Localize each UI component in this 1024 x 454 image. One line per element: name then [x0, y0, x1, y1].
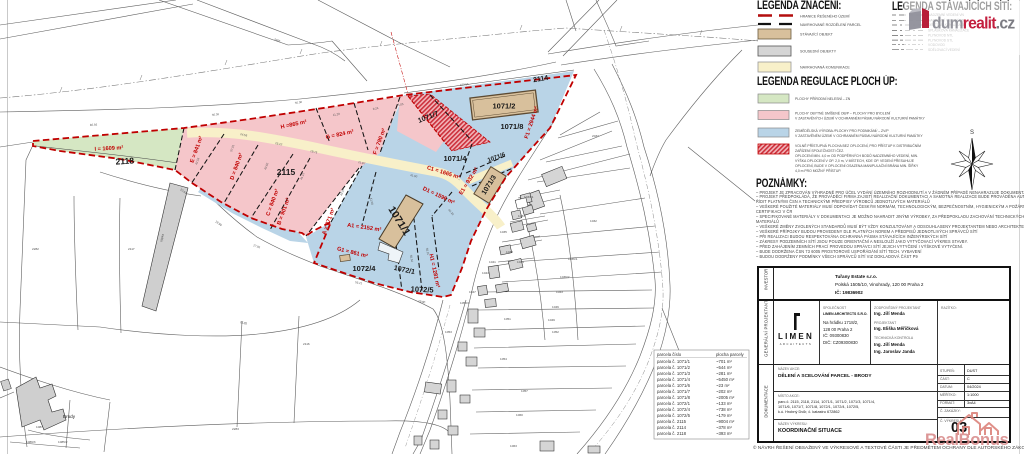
- svg-text:VOLNĚ PŘÍSTUPNÁ PLOCHA BEZ OPL: VOLNĚ PŘÍSTUPNÁ PLOCHA BEZ OPLOCENÍ, PRO…: [795, 143, 921, 148]
- svg-text:1071/8: 1071/8: [501, 122, 524, 131]
- svg-text:parcela č. 1071/4: parcela č. 1071/4: [657, 377, 691, 382]
- svg-text:NAVRHOVANÁ KOMUNIKACE: NAVRHOVANÁ KOMUNIKACE: [800, 66, 850, 70]
- svg-text:1038: 1038: [506, 250, 513, 254]
- svg-text:~738 m²: ~738 m²: [716, 407, 732, 412]
- svg-text:ZEMĚDĚLSKÁ VÝROBA /PLOCHY PRO: ZEMĚDĚLSKÁ VÝROBA /PLOCHY PRO PODNIKÁNÍ/…: [795, 128, 889, 133]
- svg-text:LIMEN: LIMEN: [778, 332, 814, 341]
- svg-text:1072/4: 1072/4: [353, 264, 377, 273]
- svg-text:~701 m²: ~701 m²: [716, 359, 732, 364]
- svg-text:OPLOCENÍ, BUDE V OPLOCENÍ OSAZ: OPLOCENÍ, BUDE V OPLOCENÍ OSAZENA MANIPU…: [795, 163, 919, 168]
- svg-text:1054: 1054: [500, 357, 507, 361]
- svg-text:PLOCHY OBYTNÉ SMÍŠENÉ OB/P – P: PLOCHY OBYTNÉ SMÍŠENÉ OB/P – PLOCHY PRO …: [795, 111, 890, 116]
- svg-text:1047: 1047: [469, 290, 476, 294]
- svg-text:parcela č. 1071/3: parcela č. 1071/3: [657, 371, 691, 376]
- svg-text:1072/5: 1072/5: [410, 284, 433, 294]
- svg-text:V ZASTAVĚNÝCH ÚZEMÍ V OCHRANNÉ: V ZASTAVĚNÝCH ÚZEMÍ V OCHRANNÉM PÁSMU NÁ…: [795, 116, 925, 121]
- svg-text:1032: 1032: [590, 219, 597, 223]
- svg-text:1031/1: 1031/1: [524, 195, 534, 199]
- svg-text:ARCHITECTS: ARCHITECTS: [780, 342, 813, 346]
- svg-text:1035: 1035: [500, 230, 507, 234]
- svg-text:parcela č. 1071/8: parcela č. 1071/8: [657, 395, 691, 400]
- svg-text:OPLOCENÍ MIN. 4,0 m OD PODPĚRN: OPLOCENÍ MIN. 4,0 m OD PODPĚRNÝCH BODŮ N…: [795, 153, 918, 158]
- svg-text:~202 m²: ~202 m²: [716, 389, 732, 394]
- svg-text:~393 m²: ~393 m²: [716, 431, 732, 436]
- svg-text:~9004 m²: ~9004 m²: [716, 419, 735, 424]
- svg-text:1087: 1087: [36, 425, 43, 429]
- svg-text:STÁVAJÍCÍ OBJEKT: STÁVAJÍCÍ OBJEKT: [800, 33, 834, 37]
- svg-text:1043: 1043: [556, 290, 563, 294]
- svg-text:2116: 2116: [303, 342, 310, 346]
- svg-text:1049: 1049: [548, 318, 555, 322]
- svg-text:1046: 1046: [552, 305, 559, 309]
- svg-text:1071/2: 1071/2: [493, 102, 516, 111]
- svg-text:parcela č. 1072/4: parcela č. 1072/4: [657, 407, 691, 412]
- svg-text:~5450 m²: ~5450 m²: [716, 377, 735, 382]
- svg-text:S: S: [970, 130, 974, 136]
- svg-text:1089/3: 1089/3: [26, 440, 36, 444]
- svg-text:ZAŘÍZENÍ SPOLEČNOSTI ČEZ.: ZAŘÍZENÍ SPOLEČNOSTI ČEZ.: [795, 148, 844, 153]
- svg-text:19.99: 19.99: [214, 220, 223, 228]
- svg-text:17.95: 17.95: [253, 243, 262, 249]
- svg-text:PLOCHY PŘÍRODNÍ NELESNÍ – ZN: PLOCHY PŘÍRODNÍ NELESNÍ – ZN: [795, 96, 851, 101]
- svg-text:2118: 2118: [115, 155, 134, 166]
- svg-text:1044: 1044: [482, 271, 489, 275]
- svg-text:Brody: Brody: [63, 414, 76, 419]
- svg-text:2282: 2282: [32, 247, 39, 251]
- svg-text:NAVRHOVANÉ ROZDĚLENÍ PARCEL: NAVRHOVANÉ ROZDĚLENÍ PARCEL: [800, 22, 861, 27]
- svg-text:~133 m²: ~133 m²: [716, 401, 732, 406]
- svg-text:parcela č. 1071/6: parcela č. 1071/6: [657, 383, 691, 388]
- svg-text:1057: 1057: [521, 389, 528, 393]
- svg-text:HRANICE ŘEŠENÉHO ÚZEMÍ: HRANICE ŘEŠENÉHO ÚZEMÍ: [800, 13, 850, 18]
- svg-text:parcela č. 1071/7: parcela č. 1071/7: [657, 389, 691, 394]
- svg-text:1039: 1039: [517, 260, 524, 264]
- svg-text:~179 m²: ~179 m²: [716, 413, 732, 418]
- svg-text:~544 m²: ~544 m²: [716, 365, 732, 370]
- svg-text:55.21: 55.21: [355, 280, 363, 285]
- svg-text:1053: 1053: [445, 330, 452, 334]
- svg-text:parcela č. 1072/5: parcela č. 1072/5: [657, 413, 691, 418]
- svg-text:82.56: 82.56: [90, 123, 98, 127]
- svg-text:parcela č. 1071/1: parcela č. 1071/1: [657, 359, 691, 364]
- svg-text:plocha parcely: plocha parcely: [716, 352, 745, 357]
- svg-text:parcela č. 2114: parcela č. 2114: [657, 425, 687, 430]
- svg-text:36.36: 36.36: [212, 112, 220, 117]
- svg-text:dumrealit.cz: dumrealit.cz: [932, 14, 1015, 33]
- svg-text:1050/1: 1050/1: [460, 301, 470, 305]
- svg-text:1036/2: 1036/2: [560, 275, 570, 279]
- svg-text:~281 m²: ~281 m²: [716, 371, 732, 376]
- svg-text:2037: 2037: [592, 134, 599, 138]
- svg-text:parcela č. 1071/2: parcela č. 1071/2: [657, 365, 691, 370]
- svg-text:2115: 2115: [277, 167, 296, 177]
- svg-text:~378 m²: ~378 m²: [716, 425, 732, 430]
- svg-text:~2005 m²: ~2005 m²: [716, 395, 735, 400]
- svg-text:parcela č. 2115: parcela č. 2115: [657, 419, 687, 424]
- svg-text:2120: 2120: [240, 320, 248, 326]
- svg-text:SOUSEDNÍ OBJEKTY: SOUSEDNÍ OBJEKTY: [800, 50, 837, 54]
- svg-text:1085/2: 1085/2: [58, 440, 68, 444]
- svg-text:56.38: 56.38: [295, 100, 303, 105]
- svg-text:2283: 2283: [232, 427, 239, 431]
- svg-text:1036/1: 1036/1: [568, 257, 578, 261]
- svg-text:1041: 1041: [489, 260, 496, 264]
- svg-text:1051: 1051: [504, 317, 511, 321]
- svg-text:1052: 1052: [552, 330, 559, 334]
- svg-text:V ZASTAVĚNÉM ÚZEMÍ V OCHRANNÉM: V ZASTAVĚNÉM ÚZEMÍ V OCHRANNÉM PÁSMU NÁR…: [795, 133, 923, 138]
- svg-text:~23 m²: ~23 m²: [716, 383, 730, 388]
- svg-text:parcela č. 1072/1: parcela č. 1072/1: [657, 401, 691, 406]
- svg-text:parcela č. 2118: parcela č. 2118: [657, 431, 687, 436]
- svg-text:VÝŠKA OPLOCENÍ V OP. 2,0 m, V: VÝŠKA OPLOCENÍ V OP. 2,0 m, V MÍSTECH, K…: [795, 158, 915, 163]
- svg-text:parcela číslo: parcela číslo: [657, 352, 682, 357]
- svg-text:1060: 1060: [516, 413, 523, 417]
- svg-text:1063: 1063: [510, 444, 517, 448]
- svg-text:29.80: 29.80: [418, 299, 426, 304]
- svg-text:4,0 m PRO MOŽNÝ PŘÍSTUP.: 4,0 m PRO MOŽNÝ PŘÍSTUP.: [795, 168, 841, 173]
- svg-text:2117: 2117: [128, 247, 135, 251]
- svg-text:1071/4: 1071/4: [444, 154, 468, 163]
- svg-text:1034: 1034: [518, 214, 525, 218]
